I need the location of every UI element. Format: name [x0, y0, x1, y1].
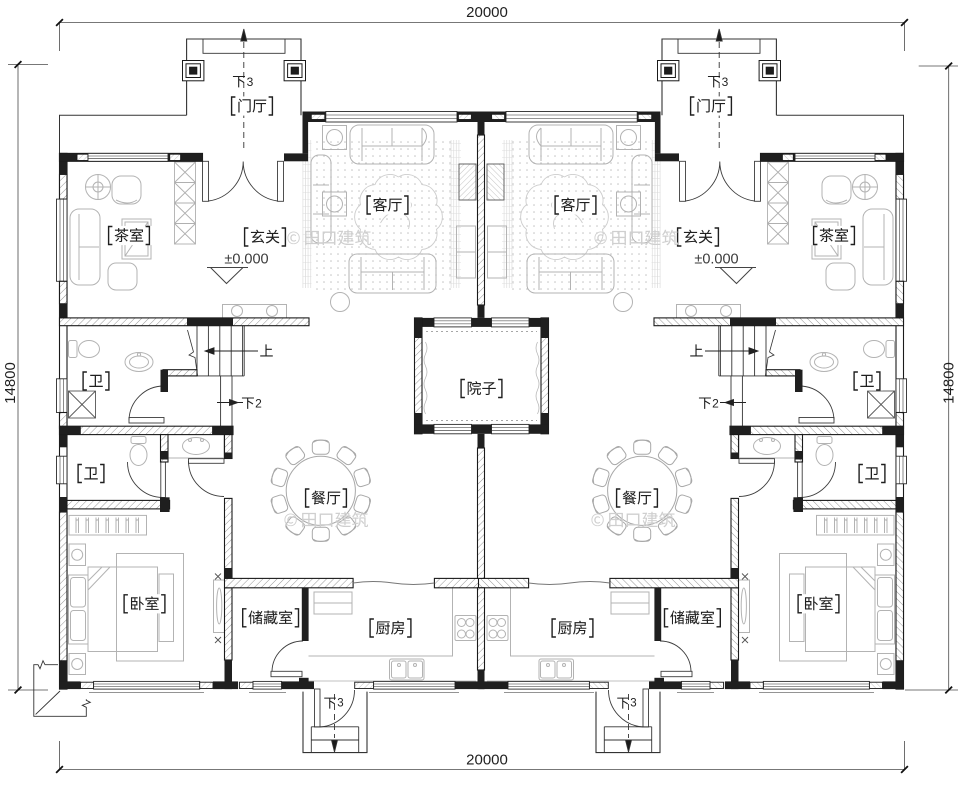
svg-text:±0.000: ±0.000 — [694, 252, 738, 268]
svg-text:3: 3 — [722, 75, 729, 89]
svg-text:3: 3 — [247, 75, 254, 89]
svg-text:2: 2 — [712, 397, 719, 411]
svg-text:14800: 14800 — [941, 362, 958, 404]
svg-text:3: 3 — [630, 698, 636, 710]
svg-text:20000: 20000 — [466, 4, 508, 21]
svg-text:20000: 20000 — [466, 752, 508, 769]
svg-text:14800: 14800 — [2, 362, 19, 404]
svg-text:2: 2 — [255, 397, 262, 411]
svg-text:±0.000: ±0.000 — [224, 252, 268, 268]
svg-text:3: 3 — [337, 698, 343, 710]
